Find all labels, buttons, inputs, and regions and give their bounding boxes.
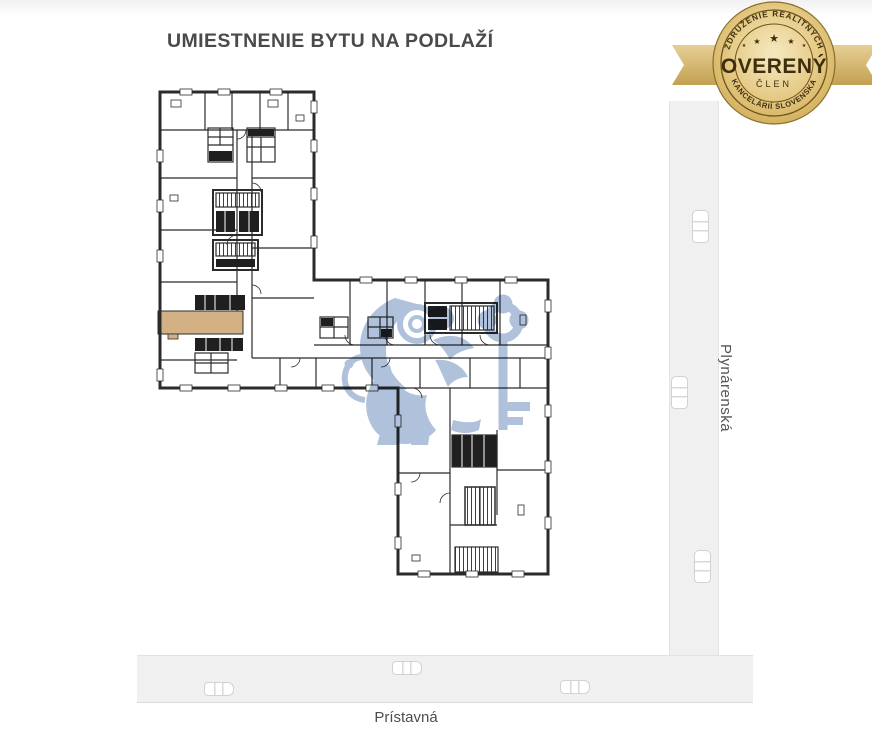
street-label-plynarenska: Plynárenská [717,344,734,432]
star-icon: ★ [753,37,760,46]
badge-title: OVERENÝ [721,54,827,78]
badge-subtitle: ČLEN [756,79,792,89]
star-icon: ★ [742,43,747,49]
listing-floorplan-page: UMIESTNENIE BYTU NA PODLAŽÍ Plynárenská … [0,0,872,735]
star-icon: ★ [787,37,794,46]
verified-member-badge: ZDRUŽENIE REALITNÝCH KANCELÁRIÍ SLOVENSK… [664,0,872,130]
car-icon [694,550,711,583]
car-icon [560,680,590,694]
street-label-pristavna: Prístavná [336,709,476,726]
car-icon [204,682,234,696]
page-title: UMIESTNENIE BYTU NA PODLAŽÍ [167,30,493,53]
star-icon: ★ [802,43,807,49]
car-icon [692,210,709,243]
agency-lion-key-watermark [335,280,550,455]
star-icon: ★ [769,33,779,45]
car-icon [671,376,688,409]
car-icon [392,661,422,675]
highlighted-unit [158,311,243,339]
